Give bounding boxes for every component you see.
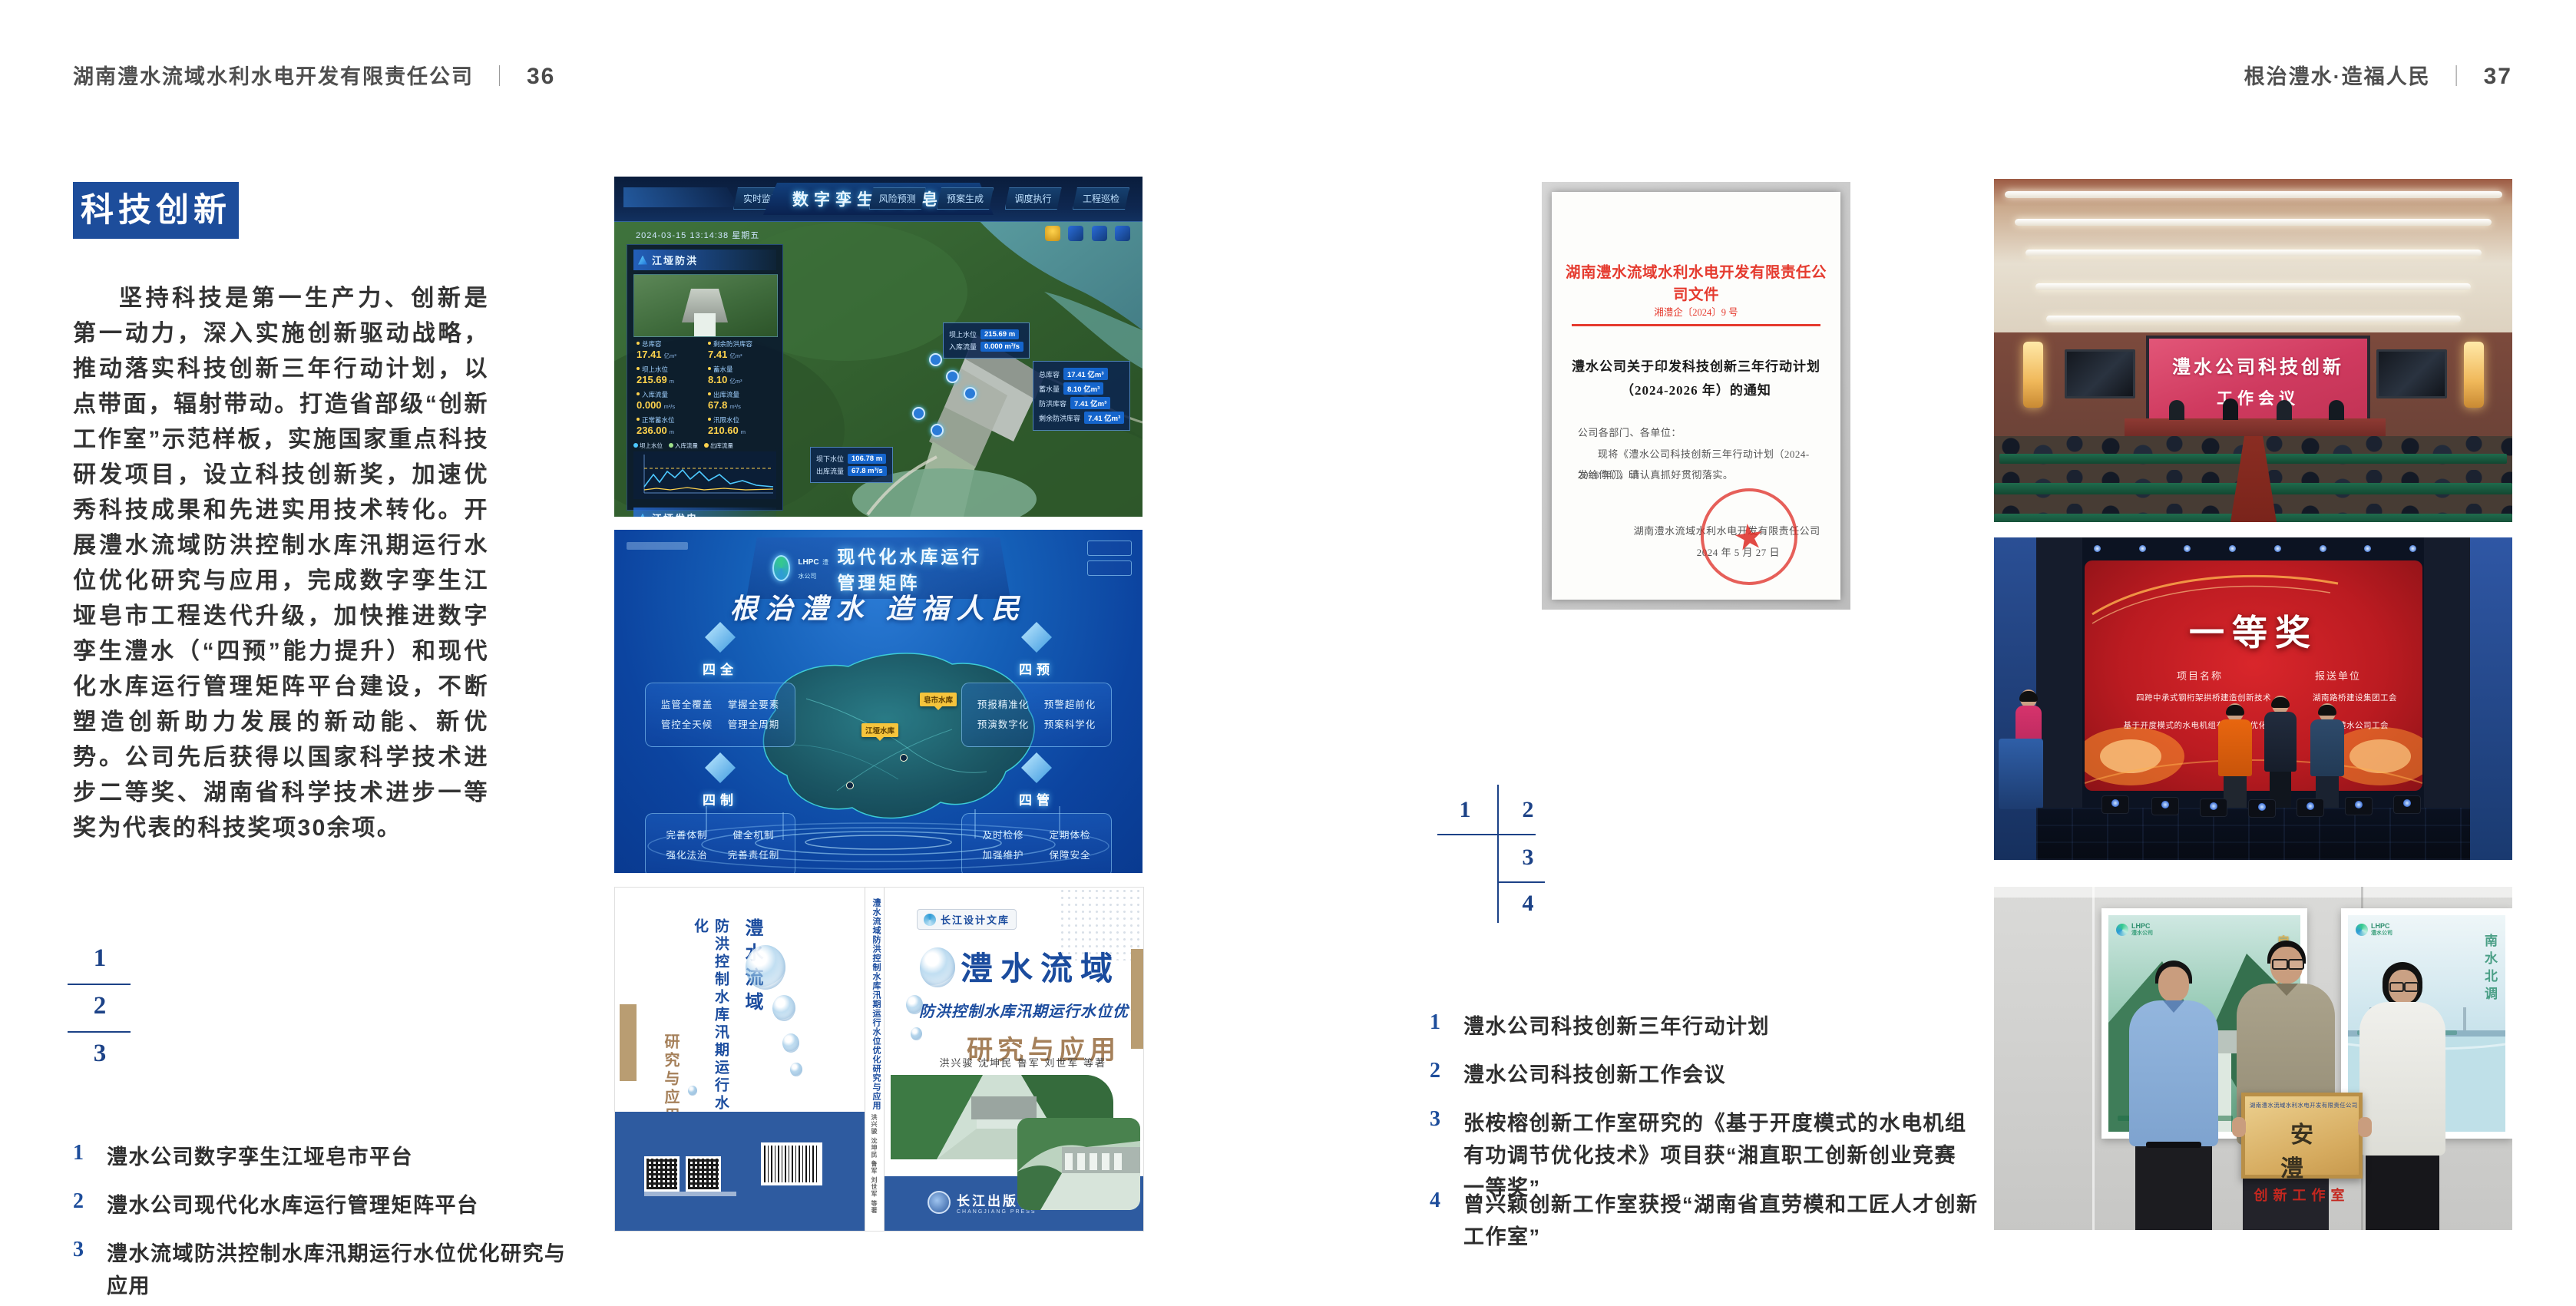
group-siquan: 四全 监管全覆盖掌握全要素 管控全天候管理全周期 — [645, 622, 795, 747]
hand — [2358, 1117, 2372, 1137]
document-number: 湘澧企〔2024〕9 号 — [1552, 304, 1840, 319]
water-droplet — [688, 1086, 697, 1096]
caption-text: 澧水公司数字孪生江垭皂市平台 — [107, 1141, 413, 1173]
person-hair — [2318, 705, 2336, 716]
power-panel-header: 江垭发电 — [633, 508, 776, 517]
lhpc-logo-icon — [772, 555, 790, 581]
ripple-rings — [614, 806, 1143, 873]
company-seal: ★ — [1695, 482, 1804, 591]
figure-divider-line — [1497, 881, 1545, 883]
ceiling-light-strip — [2046, 316, 2461, 322]
back-accent-bar — [620, 1004, 637, 1081]
matrix-slogan: 根治澧水 造福人民 — [729, 587, 1027, 627]
chart-legend: 坝上水位 入库流量 出库流量 — [633, 441, 776, 450]
person-head — [2158, 967, 2189, 1002]
front-authors: 洪兴骏 沈坤民 鲁军 刘世军 等著 — [940, 1055, 1106, 1070]
user-icon[interactable] — [1045, 226, 1060, 241]
person-body — [2310, 719, 2344, 776]
stage-light-fixture — [2297, 798, 2324, 817]
figure-number-3: 3 — [73, 1040, 127, 1068]
glasses-icon — [2272, 959, 2288, 970]
ceiling-light-strip — [2025, 250, 2482, 256]
water-droplet — [772, 995, 795, 1021]
stage-light-fixture — [2248, 799, 2276, 818]
presidium-person — [2223, 398, 2238, 420]
tab-project-inspection[interactable]: 工程巡检 — [1073, 187, 1129, 210]
figure-divider-line — [1437, 834, 1536, 835]
map-marker-small[interactable] — [846, 782, 854, 789]
figure-number-3: 3 — [1511, 845, 1545, 871]
section-title: 科技创新 — [73, 182, 239, 239]
water-droplet — [790, 1063, 802, 1076]
person-shirt — [2129, 1000, 2218, 1146]
document-header: 湖南澧水流域水利水电开发有限责任公司文件 — [1563, 260, 1829, 304]
stage-light-fixture — [2101, 795, 2129, 814]
tab-plan-generation[interactable]: 预案生成 — [937, 187, 994, 210]
panel-logo-icon — [638, 256, 647, 265]
siyu-icon — [1021, 622, 1052, 653]
siquan-icon — [705, 622, 736, 653]
column-header-project: 项目名称 — [2177, 668, 2223, 683]
header-divider: ｜ — [2446, 65, 2469, 88]
stat-cell: 汛限水位210.60m — [705, 413, 776, 438]
plaque-main-title: 安 澧 — [2245, 1116, 2359, 1183]
dashboard-timestamp: 2024-03-15 13:14:38 星期五 — [636, 229, 759, 241]
award-title: 一等奖 — [2085, 605, 2422, 656]
presidium-person — [2277, 400, 2292, 420]
flood-stats-grid: 总库容17.41亿m³ 剩余防洪库容7.41亿m³ 坝上水位215.69m 蓄水… — [633, 337, 776, 438]
podium — [1999, 739, 2043, 809]
siguan-icon — [1021, 752, 1052, 783]
caption-row: 2 澧水公司现代化水库运行管理矩阵平台 — [73, 1189, 564, 1222]
lhpc-swirl-icon — [2116, 924, 2128, 936]
settings-icon[interactable] — [1115, 226, 1130, 241]
wall-tv — [2065, 349, 2135, 398]
photo-book-cover: 研究与应用 防洪控制水库汛期运行水位优化 澧水流域 澧水流域防洪控制水库汛期运行… — [614, 887, 1144, 1232]
document-body-line2: 发给你们，请认真抓好贯彻落实。 — [1578, 465, 1820, 485]
photo-matrix-platform: LHPC 澧水公司 现代化水库运行管理矩阵 根治澧水 造福人民 皂市水库 江垭水… — [614, 530, 1143, 873]
stat-cell: 剩余防洪库容7.41亿m³ — [705, 337, 776, 362]
stage-light-fixture — [2151, 797, 2179, 815]
publisher-logo-icon — [928, 1191, 951, 1214]
figure-divider-line — [68, 1031, 131, 1033]
presenter-suit — [2264, 697, 2297, 810]
caption-text: 澧水公司科技创新工作会议 — [1463, 1059, 1726, 1091]
series-name: 长江设计文库 — [941, 912, 1010, 927]
thumbnail-spillway — [694, 313, 716, 336]
photo-official-document: 湖南澧水流域水利水电开发有限责任公司文件 湘澧企〔2024〕9 号 澧水公司关于… — [1542, 182, 1850, 610]
stat-cell: 正常蓄水位236.00m — [633, 413, 705, 438]
spine-title: 澧水流域防洪控制水库汛期运行水位优化研究与应用 — [870, 898, 882, 1110]
flood-panel: 江垭防洪 总库容17.41亿m³ 剩余防洪库容7.41亿m³ 坝上水位215.6… — [627, 244, 783, 511]
meeting-screen-line1: 澧水公司科技创新 — [2172, 352, 2344, 379]
power-panel-title: 江垭发电 — [652, 511, 698, 517]
page-number-left: 36 — [527, 64, 555, 89]
dam-thumbnail — [633, 274, 778, 337]
body-paragraph: 坚持科技是第一生产力、创新是第一动力，深入实施创新驱动战略，推动落实科技创新三年… — [73, 281, 489, 846]
front-title1: 澧水流域 — [919, 943, 1120, 990]
flood-panel-header: 江垭防洪 — [633, 250, 776, 270]
ceiling-light-strip — [2035, 283, 2471, 290]
caption-number: 1 — [73, 1141, 107, 1165]
callout-upstream: 坝上水位215.69 m 入库流量0.000 m³/s — [943, 322, 1030, 359]
photo-innovation-meeting: 澧水公司科技创新 工作会议 — [1994, 179, 2512, 522]
left-page-header: 湖南澧水流域水利水电开发有限责任公司｜36 — [73, 60, 555, 90]
water-level-chart — [633, 451, 776, 499]
siyu-panel: 预报精准化预警超前化 预演数字化预案科学化 — [961, 683, 1112, 747]
presidium-person — [2329, 400, 2344, 420]
person-hair — [2271, 697, 2290, 708]
caption-number: 2 — [1430, 1059, 1463, 1083]
document-title-line2: （2024-2026 年）的通知 — [1563, 379, 1829, 402]
qr-code — [644, 1156, 680, 1192]
wall-tv — [2376, 349, 2447, 398]
dam-marker[interactable] — [929, 353, 942, 366]
caption-row: 1 澧水公司数字孪生江垭皂市平台 — [73, 1141, 564, 1173]
water-droplet — [782, 1033, 799, 1053]
presidium-person — [2169, 400, 2184, 420]
awardee-blue — [2310, 705, 2344, 812]
map-marker-small[interactable] — [900, 754, 908, 762]
isbn-barcode — [761, 1142, 822, 1185]
front-title-block: 澧水流域 防洪控制水库汛期运行水位优化 研究与应用 — [919, 943, 1120, 1066]
document-title-line1: 澧水公司关于印发科技创新三年行动计划 — [1563, 355, 1829, 379]
caption-row: 4 曾兴颖创新工作室获授“湖南省直劳模和工匠人才创新工作室” — [1430, 1189, 1982, 1253]
poster-right-logo: LHPC澧水公司 — [2356, 923, 2392, 937]
caption-text: 曾兴颖创新工作室获授“湖南省直劳模和工匠人才创新工作室” — [1463, 1189, 1982, 1253]
book-front-cover: 长江设计文库 澧水流域 防洪控制水库汛期运行水位优化 研究与应用 洪兴骏 沈坤民… — [885, 888, 1143, 1231]
caption-text: 澧水公司现代化水库运行管理矩阵平台 — [107, 1189, 479, 1222]
wall-lamp — [2023, 342, 2043, 408]
dashboard-logo — [623, 187, 739, 207]
caption-row: 3 澧水流域防洪控制水库汛期运行水位优化研究与应用 — [73, 1238, 580, 1302]
person-body — [2264, 712, 2297, 772]
caption-row: 1 澧水公司科技创新三年行动计划 — [1430, 1010, 1982, 1043]
photo-award-ceremony: 一等奖 项目名称 报送单位 四跨中承式钢桁架拱桥建造创新技术 湖南路桥建设集团工… — [1994, 537, 2512, 860]
map-marker-jiangya[interactable]: 江垭水库 — [861, 723, 898, 737]
dam-marker[interactable] — [912, 407, 925, 420]
group-siyu: 四预 预报精准化预警超前化 预演数字化预案科学化 — [961, 622, 1112, 747]
book-spine: 澧水流域防洪控制水库汛期运行水位优化研究与应用 洪兴骏 沈坤民 鲁军 刘世军 等… — [865, 888, 885, 1231]
screen-graphics — [2085, 560, 2422, 791]
wall-lamp — [2464, 342, 2484, 408]
figure-number-2: 2 — [73, 992, 127, 1020]
person-shirt — [2359, 1002, 2445, 1156]
header-divider: ｜ — [489, 65, 511, 88]
document-paper: 湖南澧水流域水利水电开发有限责任公司文件 湘澧企〔2024〕9 号 澧水公司关于… — [1552, 192, 1840, 600]
front-title2: 防洪控制水库汛期运行水位优化 — [919, 999, 1120, 1021]
fullscreen-button[interactable] — [1087, 541, 1132, 556]
caption-number: 3 — [1430, 1107, 1463, 1132]
book-back-cover: 研究与应用 防洪控制水库汛期运行水位优化 澧水流域 — [615, 888, 865, 1231]
stat-cell: 出库流量67.8m³/s — [705, 388, 776, 413]
map-marker-zaoshi[interactable]: 皂市水库 — [920, 693, 957, 706]
matrix-logo-text: LHPC 澧水公司 — [798, 554, 829, 582]
stat-cell: 入库流量0.000m³/s — [633, 388, 705, 413]
right-page-header: 根治澧水·造福人民｜37 — [2244, 60, 2512, 90]
person-hair — [2019, 691, 2038, 702]
tab-risk-prediction[interactable]: 风险预测 — [869, 187, 926, 210]
caption-number: 2 — [73, 1189, 107, 1214]
layers-icon[interactable] — [1068, 226, 1083, 241]
caption-text: 澧水流域防洪控制水库汛期运行水位优化研究与应用 — [107, 1238, 580, 1302]
publisher-name-en: CHANGJIANG PRESS — [957, 1209, 1037, 1215]
figure-grid-vline — [1497, 785, 1499, 923]
award-row-unit: 湖南路桥建设集团工会 — [2301, 693, 2409, 704]
flood-panel-title: 江垭防洪 — [652, 253, 698, 267]
water-droplet — [746, 945, 785, 990]
back-blue-band — [615, 1112, 865, 1231]
book-spread: 湖南澧水流域水利水电开发有限责任公司｜36 科技创新 坚持科技是第一生产力、创新… — [0, 0, 2576, 1306]
page-number-right: 37 — [2484, 64, 2512, 89]
truss-lights — [2094, 545, 2416, 556]
sizhi-icon — [705, 752, 736, 783]
person-hair — [2226, 705, 2244, 716]
hand — [2232, 1117, 2246, 1137]
person-trousers — [2366, 1156, 2439, 1230]
series-badge: 长江设计文库 — [917, 909, 1017, 930]
motto: 根治澧水·造福人民 — [2244, 65, 2431, 88]
stat-cell: 坝上水位215.69m — [633, 362, 705, 388]
photo-digital-twin-dashboard: 实时监测 洪水预报 防洪预警 数字孪生江垭皂市 风险预测 预案生成 调度执行 工… — [614, 177, 1143, 517]
tab-group-right: 风险预测 预案生成 调度执行 工程巡检 — [865, 187, 1133, 210]
person-body — [2218, 719, 2252, 776]
ceiling-light-strip — [2005, 191, 2502, 198]
panel-logo-icon — [638, 514, 647, 517]
glasses-icon — [2288, 959, 2304, 970]
stat-cell: 蓄水量8.10亿m³ — [705, 362, 776, 388]
menu-button[interactable] — [1087, 560, 1132, 576]
dashboard-topbar: 实时监测 洪水预报 防洪预警 数字孪生江垭皂市 风险预测 预案生成 调度执行 工… — [614, 177, 1143, 222]
figure-number-1: 1 — [1448, 797, 1482, 823]
qr-code — [686, 1156, 721, 1192]
ceiling-light-strip — [2015, 219, 2492, 226]
seal-star-icon: ★ — [1731, 514, 1767, 559]
column-header-unit: 报送单位 — [2315, 668, 2361, 683]
front-accent-bar — [1131, 949, 1143, 1049]
stat-cell: 总库容17.41亿m³ — [633, 337, 705, 362]
stage-light-fixture — [2200, 798, 2227, 817]
glasses-icon — [2404, 982, 2419, 992]
dam-marker[interactable] — [931, 424, 944, 437]
wall-seam — [2092, 887, 2095, 1230]
tab-dispatch-execution[interactable]: 调度执行 — [1005, 187, 1062, 210]
dam-marker[interactable] — [964, 387, 977, 400]
dam-marker[interactable] — [946, 370, 959, 383]
poster-right-vertical-title: 南水北调 — [2480, 934, 2499, 1004]
figure-number-2: 2 — [1511, 797, 1545, 823]
person-trousers — [2135, 1146, 2212, 1230]
awardee-orange — [2218, 705, 2252, 812]
figure-number-4: 4 — [1511, 891, 1545, 917]
wall-top-trim — [1994, 887, 2512, 898]
datetime-placeholder — [627, 542, 688, 550]
photo-workshop-plaque: LHPC澧水公司 皂市水库 LHPC澧水公司 — [1994, 887, 2512, 1230]
document-red-rule — [1572, 324, 1820, 326]
callout-reservoir: 总库容17.41 亿m³ 蓄水量8.10 亿m³ 防洪库容7.41 亿m³ 剩余… — [1033, 361, 1130, 431]
figure-number-1: 1 — [73, 944, 127, 973]
series-logo-icon — [924, 914, 936, 926]
caption-number: 1 — [1430, 1010, 1463, 1035]
stage-side-panel-right — [2470, 537, 2512, 860]
locate-icon[interactable] — [1092, 226, 1107, 241]
company-name: 湖南澧水流域水利水电开发有限责任公司 — [73, 65, 474, 88]
belt — [2146, 1142, 2201, 1148]
caption-number: 3 — [73, 1238, 107, 1262]
person-right — [2349, 962, 2456, 1230]
plaque-header: 湖南澧水流域水利水电开发有限责任公司 — [2250, 1101, 2354, 1109]
figure-divider-line — [68, 984, 131, 985]
stage-light-fixture — [2393, 795, 2421, 814]
stage-light-fixture — [2345, 797, 2373, 815]
document-salutation: 公司各部门、各单位： — [1578, 422, 1820, 443]
led-screen: 一等奖 项目名称 报送单位 四跨中承式钢桁架拱桥建造创新技术 湖南路桥建设集团工… — [2085, 560, 2422, 791]
caption-number: 4 — [1430, 1189, 1463, 1213]
plaque-sub-title: 创新工作室 — [2245, 1185, 2359, 1205]
person-left — [2115, 960, 2230, 1230]
spine-authors: 洪兴骏 沈坤民 鲁军 刘世军 等著 — [870, 1114, 878, 1214]
caption-text: 澧水公司科技创新三年行动计划 — [1463, 1010, 1770, 1043]
caption-row: 2 澧水公司科技创新工作会议 — [1430, 1059, 1982, 1091]
qr-caption-placeholder — [644, 1192, 736, 1196]
dashboard-toolbar-icons — [1040, 226, 1130, 245]
poster-left-logo: LHPC澧水公司 — [2116, 923, 2153, 937]
siquan-panel: 监管全覆盖掌握全要素 管控全天候管理全周期 — [645, 683, 795, 747]
innovation-plaque: 湖南澧水流域水利水电开发有限责任公司 安 澧 创新工作室 — [2241, 1093, 2363, 1179]
glasses-icon — [2389, 982, 2404, 992]
front-cover-photo-small — [1017, 1118, 1140, 1210]
callout-downstream: 坝下水位106.78 m 出库流量67.8 m³/s — [810, 447, 893, 483]
lhpc-swirl-icon — [2356, 924, 2368, 936]
